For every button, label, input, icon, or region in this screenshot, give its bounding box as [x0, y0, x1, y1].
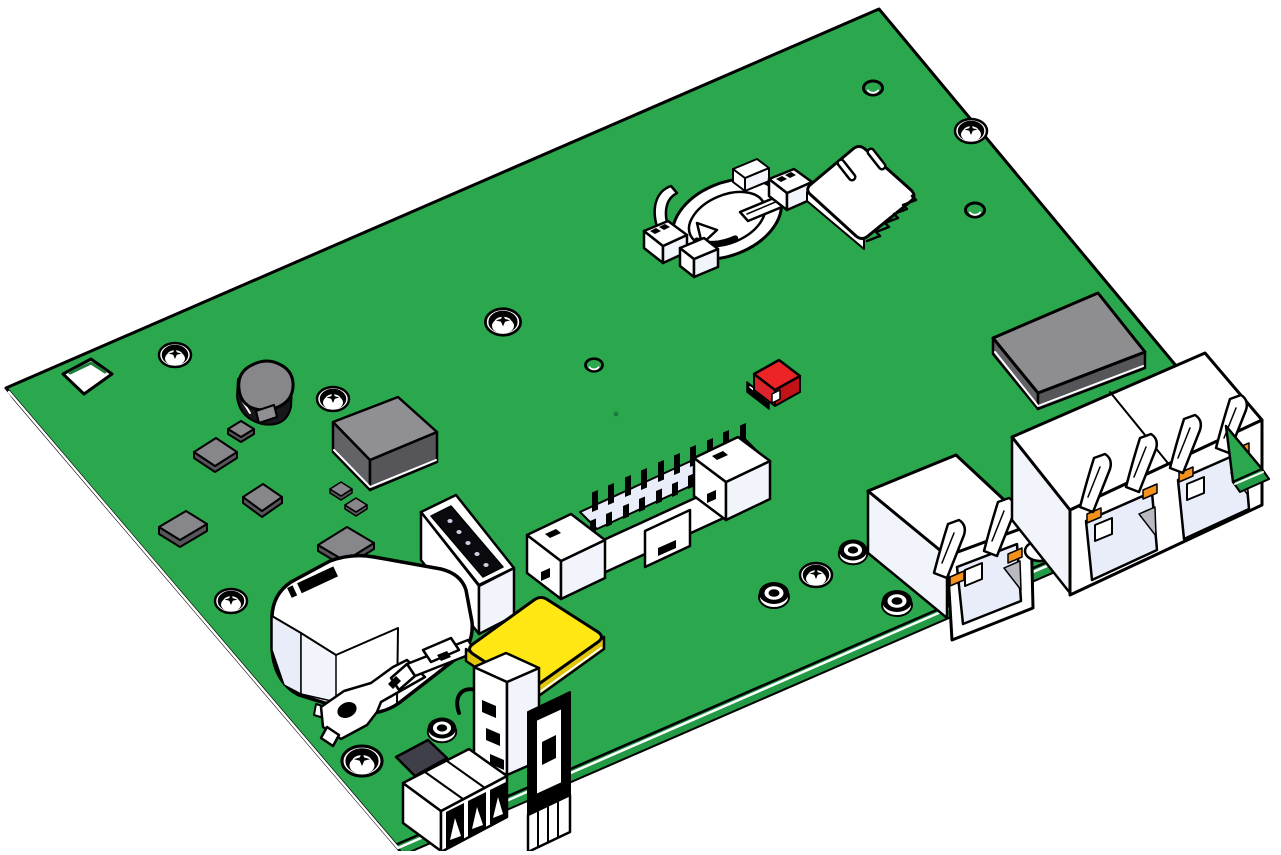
mounting-screw — [955, 119, 987, 143]
cad-viewport: Green PCB — 3D CAD isometric rendering L… — [0, 0, 1281, 851]
via — [585, 359, 602, 372]
mounting-screw — [800, 563, 832, 587]
plated-hole — [759, 582, 789, 608]
inductor-top — [239, 361, 293, 410]
power-inductor: Power inductor — [237, 361, 293, 425]
plated-hole — [839, 540, 868, 565]
mounting-screw — [317, 387, 349, 411]
plated-hole — [882, 590, 912, 616]
mounting-screw — [485, 309, 520, 335]
mounting-screw — [342, 746, 382, 776]
mounting-screw — [215, 589, 247, 613]
plated-hole — [428, 718, 457, 743]
via — [966, 203, 985, 217]
mounting-screw — [159, 343, 191, 367]
via-dot — [614, 412, 618, 416]
usb-shell-opening — [528, 692, 570, 815]
via — [864, 81, 883, 95]
pcb-illustration: Green PCB — 3D CAD isometric rendering L… — [0, 0, 1281, 851]
